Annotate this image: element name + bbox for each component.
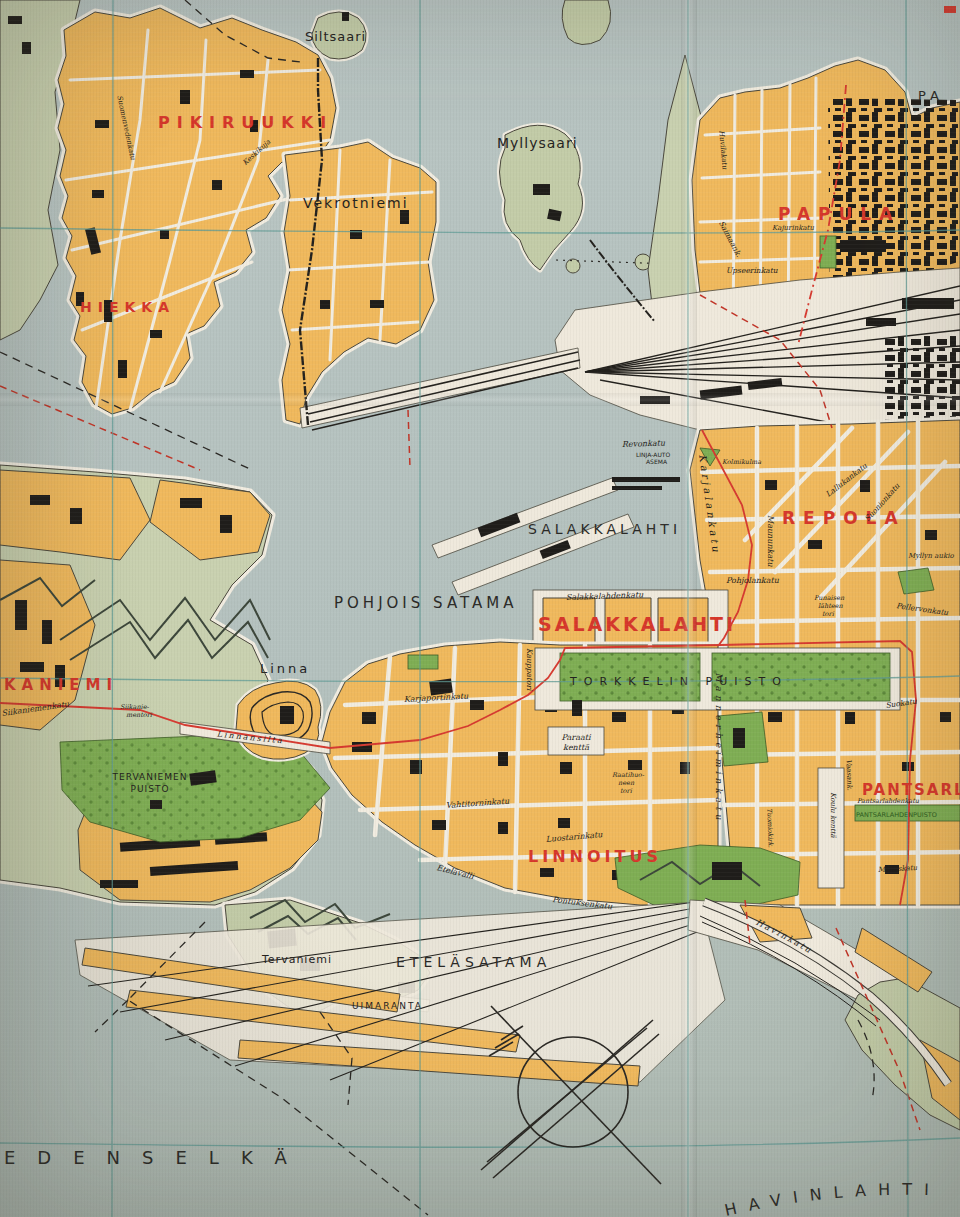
label-district-papula: PAPULA (778, 204, 900, 224)
label-district-pikiruukki: PIKIRUUKKI (158, 113, 333, 132)
label-tuomiokirkonkatu: Tuomiokirk. (765, 808, 774, 848)
label-paraati-1: Paraati (562, 733, 592, 742)
label-tervaniemen-puisto-1: TERVANIEMEN (112, 772, 188, 782)
map-photo: PIKIRUUKKI HIEKKA PAPULA REPOLA SALAKKAL… (0, 0, 960, 1217)
label-vaasankatu: Vaasank. (844, 759, 853, 791)
label-koulukentta: Koulu kenttä (829, 792, 837, 838)
label-pa-partial: PA (918, 88, 944, 103)
label-pantsarlahdenkatu: Pantsarlahdenkatu (857, 797, 920, 805)
label-myllysaari: Myllysaari (497, 135, 578, 151)
label-revonkatu: Revonkatu (622, 438, 666, 449)
label-siikaniementori-2: mentori (126, 711, 153, 719)
label-district-salakkalahti: SALAKKALAHTI (538, 613, 736, 635)
label-vekrotniemi: Vekrotniemi (303, 195, 409, 211)
label-siltsaari: Siltsaari (305, 29, 366, 44)
label-edenselka: EDENSELKÄ (4, 1147, 309, 1168)
label-upseerinkatu: Upseerinkatu (726, 266, 778, 275)
label-linna: Linna (260, 661, 310, 676)
label-bay-salakkalahti: SALAKKALAHTI (528, 521, 681, 537)
label-tervaniemi: Tervaniemi (261, 953, 332, 966)
label-punaisenlahteentori-3: tori (822, 610, 835, 618)
label-district-hiekka: HIEKKA (80, 299, 175, 315)
label-raatihuoneentori-3: tori (620, 787, 633, 795)
label-district-repola: REPOLA (782, 508, 906, 528)
label-kajurinkatu: Kajurinkatu (772, 224, 814, 232)
label-raatihuoneentori-2: neen (618, 779, 635, 787)
label-pohjois-satama: POHJOIS SATAMA (334, 594, 517, 612)
label-tervaniemen-puisto-2: PUISTO (131, 784, 170, 794)
label-district-linnoitus: LINNOITUS (528, 847, 662, 866)
label-torkkelin-puisto: TORKKELIN PUISTO (569, 675, 788, 688)
label-punaisenlahteentori-2: lähteen (818, 602, 843, 610)
city-map-svg: PIKIRUUKKI HIEKKA PAPULA REPOLA SALAKKAL… (0, 0, 960, 1217)
label-myllyn-aukio: Myllyn aukio (908, 552, 954, 560)
map-sheet-mark (944, 6, 956, 13)
label-pohjolankatu: Pohjolankatu (726, 576, 780, 585)
label-uimaranta: UIMARANTA (352, 1001, 423, 1011)
label-raatihuoneentori-1: Raatihuo- (612, 771, 645, 779)
label-siikaniementori-1: Siikanie- (120, 703, 150, 711)
label-kauppatori: Kauppatori (525, 648, 534, 691)
label-linja-auto-2: ASEMA (646, 458, 668, 465)
label-paraati-2: kenttä (563, 743, 589, 752)
label-mannerheiminkatu: Mannerheiminkatu (714, 672, 724, 823)
label-punaisenlahteentori-1: Punaisen (814, 594, 845, 602)
label-district-kaniemi: KANIEMI (4, 676, 118, 694)
label-etelasatama: ETELÄSATAMA (396, 953, 551, 970)
label-maununkatu: Maununkatu (766, 515, 775, 567)
label-pantsarlahden-puisto: PANTSARLAHDENPUISTO (856, 811, 937, 819)
label-kolmikulma: Kolmikulma (722, 458, 761, 466)
